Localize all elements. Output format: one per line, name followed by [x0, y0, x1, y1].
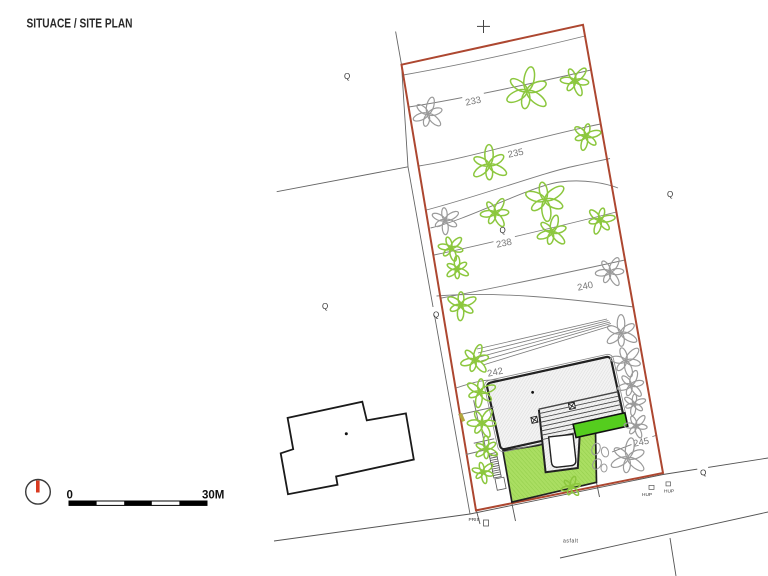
- svg-text:30M: 30M: [202, 490, 224, 502]
- svg-text:Q: Q: [322, 302, 328, 311]
- svg-text:asfalt: asfalt: [563, 539, 579, 545]
- svg-text:PRIS: PRIS: [469, 517, 480, 523]
- svg-text:Q: Q: [667, 190, 673, 199]
- svg-text:Q: Q: [500, 226, 506, 235]
- svg-text:SITUACE / SITE PLAN: SITUACE / SITE PLAN: [27, 16, 133, 31]
- svg-text:HUP: HUP: [642, 492, 652, 498]
- svg-text:HUP: HUP: [664, 489, 674, 495]
- svg-text:Q: Q: [433, 311, 439, 320]
- svg-text:0: 0: [67, 490, 73, 502]
- svg-text:Q: Q: [344, 72, 350, 81]
